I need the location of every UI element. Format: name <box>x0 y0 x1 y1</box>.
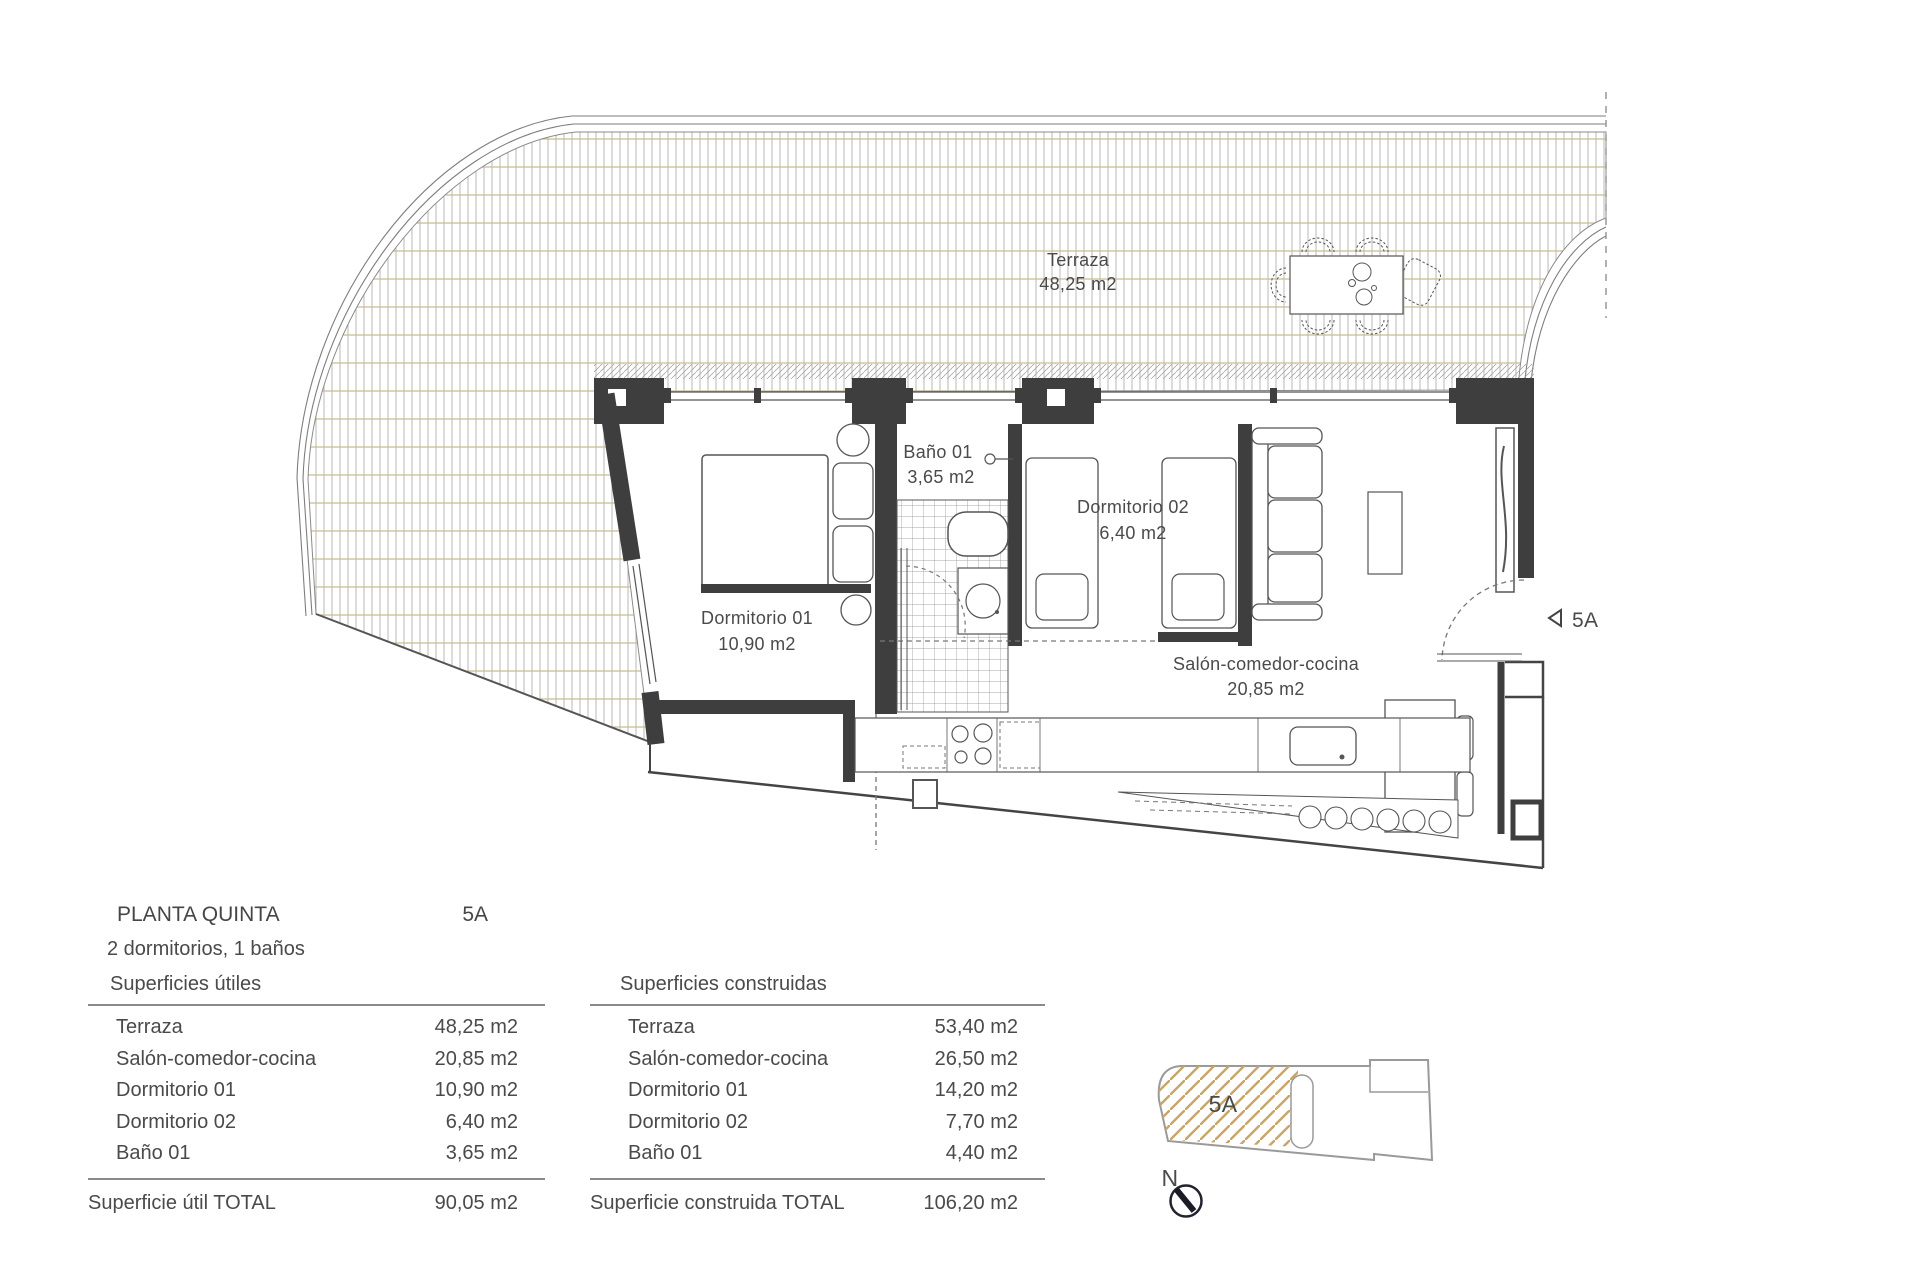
bathtub <box>948 512 1008 556</box>
row-label: Dormitorio 02 <box>88 1107 236 1139</box>
bedroom1-label: Dormitorio 01 <box>701 608 813 628</box>
table-row: Terraza53,40 m2 <box>590 1012 1045 1044</box>
table-row: Dormitorio 0110,90 m2 <box>88 1075 545 1107</box>
terrace-area-label: 48,25 m2 <box>1039 274 1116 294</box>
row-label: Baño 01 <box>590 1138 703 1170</box>
pillow <box>833 526 873 582</box>
outdoor-table <box>1290 256 1403 314</box>
table-row: Terraza48,25 m2 <box>88 1012 545 1044</box>
coffee-table <box>1368 492 1402 574</box>
total-row: Superficie construida TOTAL 106,20 m2 <box>590 1188 1045 1220</box>
total-value: 106,20 m2 <box>923 1188 1045 1220</box>
spacer <box>590 900 1045 970</box>
sink <box>1290 727 1356 765</box>
kitchen-wall-end <box>843 700 855 782</box>
row-label: Salón-comedor-cocina <box>590 1044 828 1076</box>
shaft <box>1513 802 1541 838</box>
row-value: 4,40 m2 <box>946 1138 1045 1170</box>
living-area-label: 20,85 m2 <box>1227 679 1304 699</box>
bedroom1-bottom-wall <box>648 700 853 714</box>
built-rows: Terraza53,40 m2 Salón-comedor-cocina26,5… <box>590 1006 1045 1170</box>
wall-bedroom2-living <box>1238 424 1252 646</box>
basin-tap <box>995 610 999 614</box>
room-bathroom <box>897 454 1013 712</box>
row-value: 53,40 m2 <box>935 1012 1045 1044</box>
keyplan-unit-label: 5A <box>1209 1091 1238 1117</box>
summary-table-built: Superficies construidas Terraza53,40 m2 … <box>590 900 1045 1219</box>
pillow <box>1172 574 1224 620</box>
bedroom1-area-label: 10,90 m2 <box>718 634 795 654</box>
kitchen <box>855 718 1470 838</box>
north-arrow-icon: N <box>1162 1165 1202 1217</box>
row-value: 20,85 m2 <box>435 1044 545 1076</box>
sofa <box>1252 428 1322 620</box>
entrance-direction-icon <box>1549 610 1561 626</box>
bathroom-label: Baño 01 <box>903 442 972 462</box>
nightstand <box>841 595 871 625</box>
sink-tap <box>1340 755 1345 760</box>
wardrobe-bar <box>1158 632 1245 642</box>
table-row: Salón-comedor-cocina20,85 m2 <box>88 1044 545 1076</box>
row-label: Dormitorio 01 <box>590 1075 748 1107</box>
entrance-notch <box>1505 662 1543 697</box>
total-label: Superficie construida TOTAL <box>590 1188 845 1220</box>
nightstand <box>837 424 869 456</box>
entrance-unit-label: 5A <box>1572 609 1598 632</box>
living-label: Salón-comedor-cocina <box>1173 654 1360 674</box>
room-bedroom-1 <box>701 424 873 625</box>
row-label: Baño 01 <box>88 1138 191 1170</box>
row-label: Dormitorio 02 <box>590 1107 748 1139</box>
useful-rows: Terraza48,25 m2 Salón-comedor-cocina20,8… <box>88 1006 545 1170</box>
table-row: Dormitorio 027,70 m2 <box>590 1107 1045 1139</box>
table-row: Baño 014,40 m2 <box>590 1138 1045 1170</box>
north-label: N <box>1162 1165 1179 1191</box>
room-bedroom-2 <box>1026 458 1236 628</box>
wall-bedroom1-bath <box>875 424 897 714</box>
unit-label: 5A <box>462 900 488 934</box>
plan-title-row: PLANTA QUINTA 5A <box>88 900 545 934</box>
row-label: Terraza <box>88 1012 183 1044</box>
entrance-threshold <box>1437 654 1522 661</box>
table-row: Salón-comedor-cocina26,50 m2 <box>590 1044 1045 1076</box>
total-value: 90,05 m2 <box>435 1188 545 1220</box>
row-label: Salón-comedor-cocina <box>88 1044 316 1076</box>
left-wall-lower <box>650 692 656 744</box>
door-handle <box>985 454 995 464</box>
bed-double <box>702 455 828 591</box>
dining-chair <box>1457 772 1473 816</box>
built-header: Superficies construidas <box>590 970 1045 1000</box>
table-row: Dormitorio 0114,20 m2 <box>590 1075 1045 1107</box>
exterior-finish-band <box>594 364 1534 379</box>
useful-header: Superficies útiles <box>88 970 545 1000</box>
divider <box>88 1178 545 1180</box>
row-value: 6,40 m2 <box>446 1107 545 1139</box>
total-row: Superficie útil TOTAL 90,05 m2 <box>88 1188 545 1220</box>
bathroom-area-label: 3,65 m2 <box>907 467 974 487</box>
terrace-label: Terraza <box>1047 250 1110 270</box>
pillow <box>1036 574 1088 620</box>
row-value: 26,50 m2 <box>935 1044 1045 1076</box>
keyplan: 5A N <box>1159 1060 1432 1217</box>
divider <box>590 1178 1045 1180</box>
wall-bath-bedroom2 <box>1008 424 1022 646</box>
unit-config: 2 dormitorios, 1 baños <box>88 934 545 970</box>
keyplan-core <box>1291 1075 1313 1148</box>
table-row: Dormitorio 026,40 m2 <box>88 1107 545 1139</box>
table-row: Baño 013,65 m2 <box>88 1138 545 1170</box>
row-label: Dormitorio 01 <box>88 1075 236 1107</box>
row-value: 3,65 m2 <box>446 1138 545 1170</box>
row-value: 7,70 m2 <box>946 1107 1045 1139</box>
summary-table-useful: PLANTA QUINTA 5A 2 dormitorios, 1 baños … <box>88 900 545 1219</box>
pillow <box>833 463 873 519</box>
row-value: 48,25 m2 <box>435 1012 545 1044</box>
row-value: 14,20 m2 <box>935 1075 1045 1107</box>
bedroom2-area-label: 6,40 m2 <box>1099 523 1166 543</box>
total-label: Superficie útil TOTAL <box>88 1188 276 1220</box>
right-wall <box>1518 390 1534 578</box>
column <box>913 780 937 808</box>
row-label: Terraza <box>590 1012 695 1044</box>
entrance-marker: 5A <box>1549 609 1598 632</box>
row-value: 10,90 m2 <box>435 1075 545 1107</box>
floorplan-page: Terraza 48,25 m2 <box>0 0 1920 1280</box>
washbasin <box>966 584 1000 618</box>
bed-foot-board <box>701 584 871 593</box>
bedroom2-label: Dormitorio 02 <box>1077 497 1189 517</box>
page-title: PLANTA QUINTA <box>117 900 280 934</box>
wall-vent-mid <box>1047 389 1065 406</box>
